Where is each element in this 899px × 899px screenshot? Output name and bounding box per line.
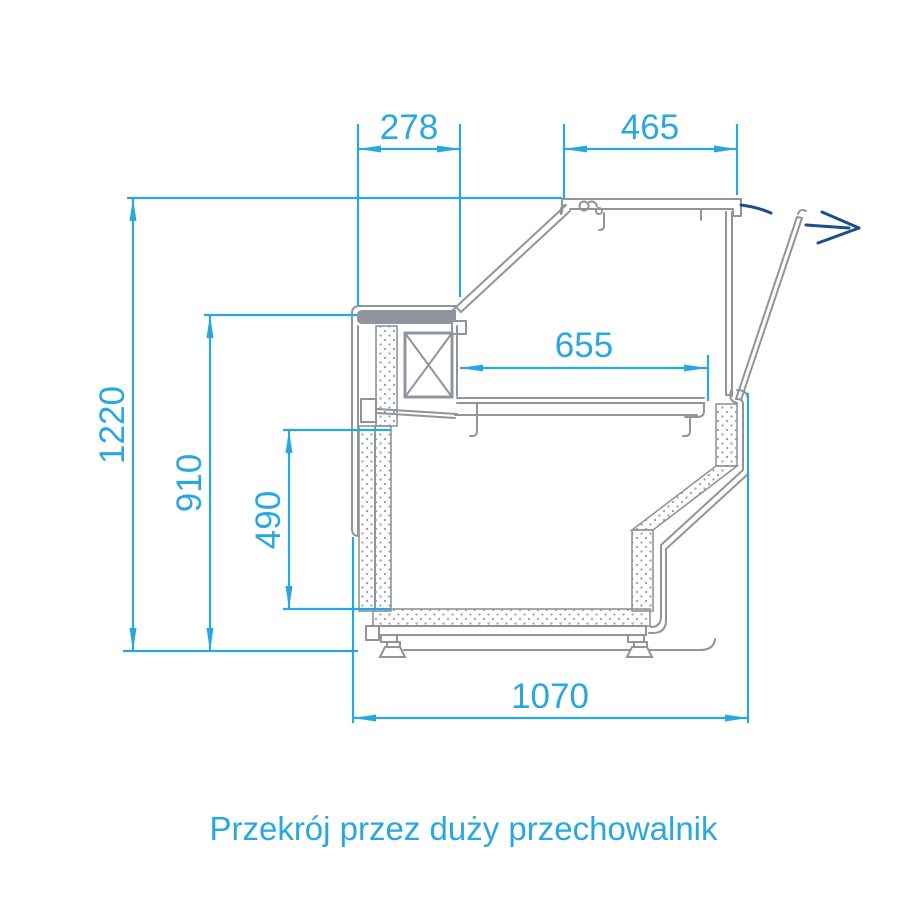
- left-wall-insulation: [359, 326, 397, 611]
- dim-label-1070: 1070: [511, 677, 589, 716]
- dim-label-910: 910: [170, 454, 209, 512]
- drawing-caption: Przekrój przez duży przechowalnik: [0, 810, 899, 848]
- cross-section-drawing: 278 465 655 1220 910 490 1070: [0, 0, 899, 899]
- front-wall-insulation: [632, 404, 737, 611]
- lid-hinge: [561, 202, 604, 231]
- technical-drawing-svg: 278 465 655 1220 910 490 1070: [0, 0, 899, 899]
- display-deck: [377, 398, 704, 436]
- adjustable-foot-left: [380, 642, 405, 657]
- adjustable-foot-right: [627, 642, 652, 657]
- glass-clip: [452, 321, 466, 334]
- crossed-box-evaporator-icon: [405, 333, 452, 397]
- page: { "drawing": { "caption": "Przekrój prze…: [0, 0, 899, 899]
- dim-label-465: 465: [621, 108, 679, 147]
- base-insulation: [373, 609, 650, 626]
- rear-glass-panel: [726, 212, 732, 396]
- dim-label-655: 655: [555, 326, 613, 365]
- dim-label-278: 278: [380, 108, 438, 147]
- dim-label-1220: 1220: [93, 386, 132, 464]
- cabinet-outline: [352, 199, 859, 657]
- open-flap-panel: [730, 210, 806, 403]
- dim-label-490: 490: [249, 491, 288, 549]
- sloped-glass-panel: [450, 206, 570, 313]
